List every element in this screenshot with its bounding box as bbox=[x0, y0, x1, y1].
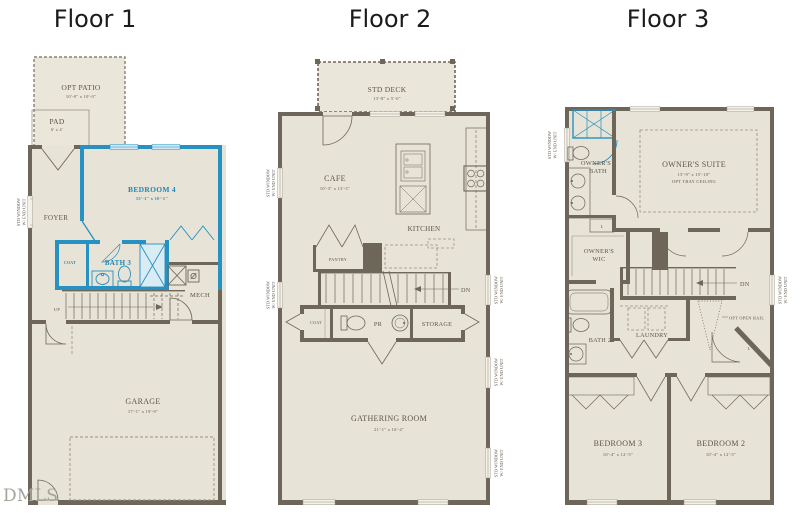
floor-plan-canvas: Floor 1 Floor 2 Floor 3 OPT PATIO 10'-0"… bbox=[0, 0, 800, 516]
kitchen-label: KITCHEN bbox=[408, 225, 441, 233]
bedroom3-label: BEDROOM 3 bbox=[594, 439, 643, 448]
coat2-label: COAT bbox=[310, 320, 322, 325]
foyer-label: FOYER bbox=[44, 214, 68, 222]
window-note: W/ END UNIT bbox=[499, 358, 504, 385]
bath2-label: BATH 2 bbox=[589, 337, 612, 344]
bedroom2-dims: 10'-4" x 12'-5" bbox=[706, 452, 736, 457]
deck-label: STD DECK bbox=[368, 85, 407, 94]
deck-dims: 13'-8" x 5'-0" bbox=[373, 96, 401, 101]
window-note: W/ END UNIT bbox=[499, 449, 504, 476]
storage-label: STORAGE bbox=[422, 321, 453, 328]
window-note: W/ END UNIT bbox=[499, 276, 504, 303]
floor3-title: Floor 3 bbox=[627, 5, 710, 33]
window-note: W/ END UNIT bbox=[553, 131, 558, 158]
linen-lower-label: L bbox=[748, 346, 751, 351]
pr-label: PR bbox=[374, 321, 383, 328]
bedroom4-label: BEDROOM 4 bbox=[128, 185, 176, 194]
window-note: STD WINDOW bbox=[778, 276, 783, 304]
mech-label: MECH bbox=[190, 292, 210, 299]
gathering-room-dims: 21'-1" x 16'-4" bbox=[374, 427, 404, 432]
window-note: STD WINDOW bbox=[494, 276, 499, 304]
owners-wic-label2: WIC bbox=[592, 256, 605, 263]
window-note: STD WINDOW bbox=[494, 358, 499, 386]
floor1-interior bbox=[28, 145, 226, 505]
bedroom4-dims: 15'-1" x 10'-1" bbox=[136, 196, 168, 201]
stairs-up-label: UP bbox=[54, 307, 60, 312]
owners-bath-label2: BATH bbox=[589, 168, 607, 175]
owners-suite-label: OWNER'S SUITE bbox=[662, 160, 726, 169]
floor1-title: Floor 1 bbox=[54, 5, 137, 33]
gathering-room-label: GATHERING ROOM bbox=[351, 414, 427, 423]
laundry-label: LAUNDRY bbox=[636, 332, 668, 339]
pantry-label: PANTRY bbox=[329, 257, 347, 262]
bedroom3-dims: 10'-4" x 12'-5" bbox=[603, 452, 633, 457]
window-note: STD WINDOW bbox=[266, 281, 271, 309]
owners-suite-dims: 15'-9" x 15'-10" bbox=[678, 172, 711, 177]
window-note: W/ END UNIT bbox=[271, 169, 276, 196]
window-note: STD WINDOW bbox=[547, 131, 552, 159]
opt-patio-label: OPT PATIO bbox=[61, 83, 100, 92]
window-note: STD WINDOW bbox=[266, 169, 271, 197]
garage-label: GARAGE bbox=[125, 397, 160, 406]
floor1-plan: OPT PATIO 10'-0" x 10'-0" PAD 6' x 4' bbox=[16, 57, 226, 505]
owners-wic-label1: OWNER'S bbox=[584, 248, 614, 255]
owners-bath-label1: OWNER'S bbox=[581, 160, 611, 167]
bath3-label: BATH 3 bbox=[105, 259, 132, 267]
cafe-label: CAFE bbox=[324, 174, 346, 183]
garage-dims: 17'-1" x 19'-9" bbox=[128, 409, 158, 414]
floor2-title: Floor 2 bbox=[349, 5, 432, 33]
linen-upper-label: L bbox=[601, 224, 604, 229]
pad-label: PAD bbox=[49, 117, 64, 126]
bedroom2-label: BEDROOM 2 bbox=[697, 439, 746, 448]
stairs-dn-label: DN bbox=[461, 287, 471, 294]
pad-dims: 6' x 4' bbox=[51, 127, 63, 132]
window-note: W/ END UNIT bbox=[271, 281, 276, 308]
window-note: STD WINDOW bbox=[16, 198, 21, 226]
foyer-window bbox=[28, 196, 33, 228]
opt-patio-area bbox=[34, 57, 125, 146]
dmls-watermark: DMLS bbox=[3, 486, 58, 506]
window-note: W/ END UNIT bbox=[783, 276, 788, 303]
coat-label: COAT bbox=[64, 261, 76, 265]
window-note: W/ END UNIT bbox=[22, 198, 27, 225]
opt-open-rail-label: OPT OPEN RAIL bbox=[729, 316, 764, 321]
opt-patio-dims: 10'-0" x 10'-0" bbox=[66, 94, 96, 99]
stairs-dn3-label: DN bbox=[740, 281, 750, 288]
owners-suite-option: OPT TRAY CEILING bbox=[672, 179, 717, 184]
window-note: STD WINDOW bbox=[494, 449, 499, 477]
floor2-plan: STD DECK 13'-8" x 5'-0" STD WINDOW W/ EN… bbox=[266, 59, 505, 505]
floorplan-page: Floor 1 Floor 2 Floor 3 OPT PATIO 10'-0"… bbox=[0, 0, 800, 516]
cafe-dims: 10'-3" x 13'-5" bbox=[320, 186, 350, 191]
floor3-plan: STD WINDOW W/ END UNIT STD WINDOW W/ END… bbox=[547, 107, 788, 506]
wall-chase bbox=[652, 232, 668, 270]
